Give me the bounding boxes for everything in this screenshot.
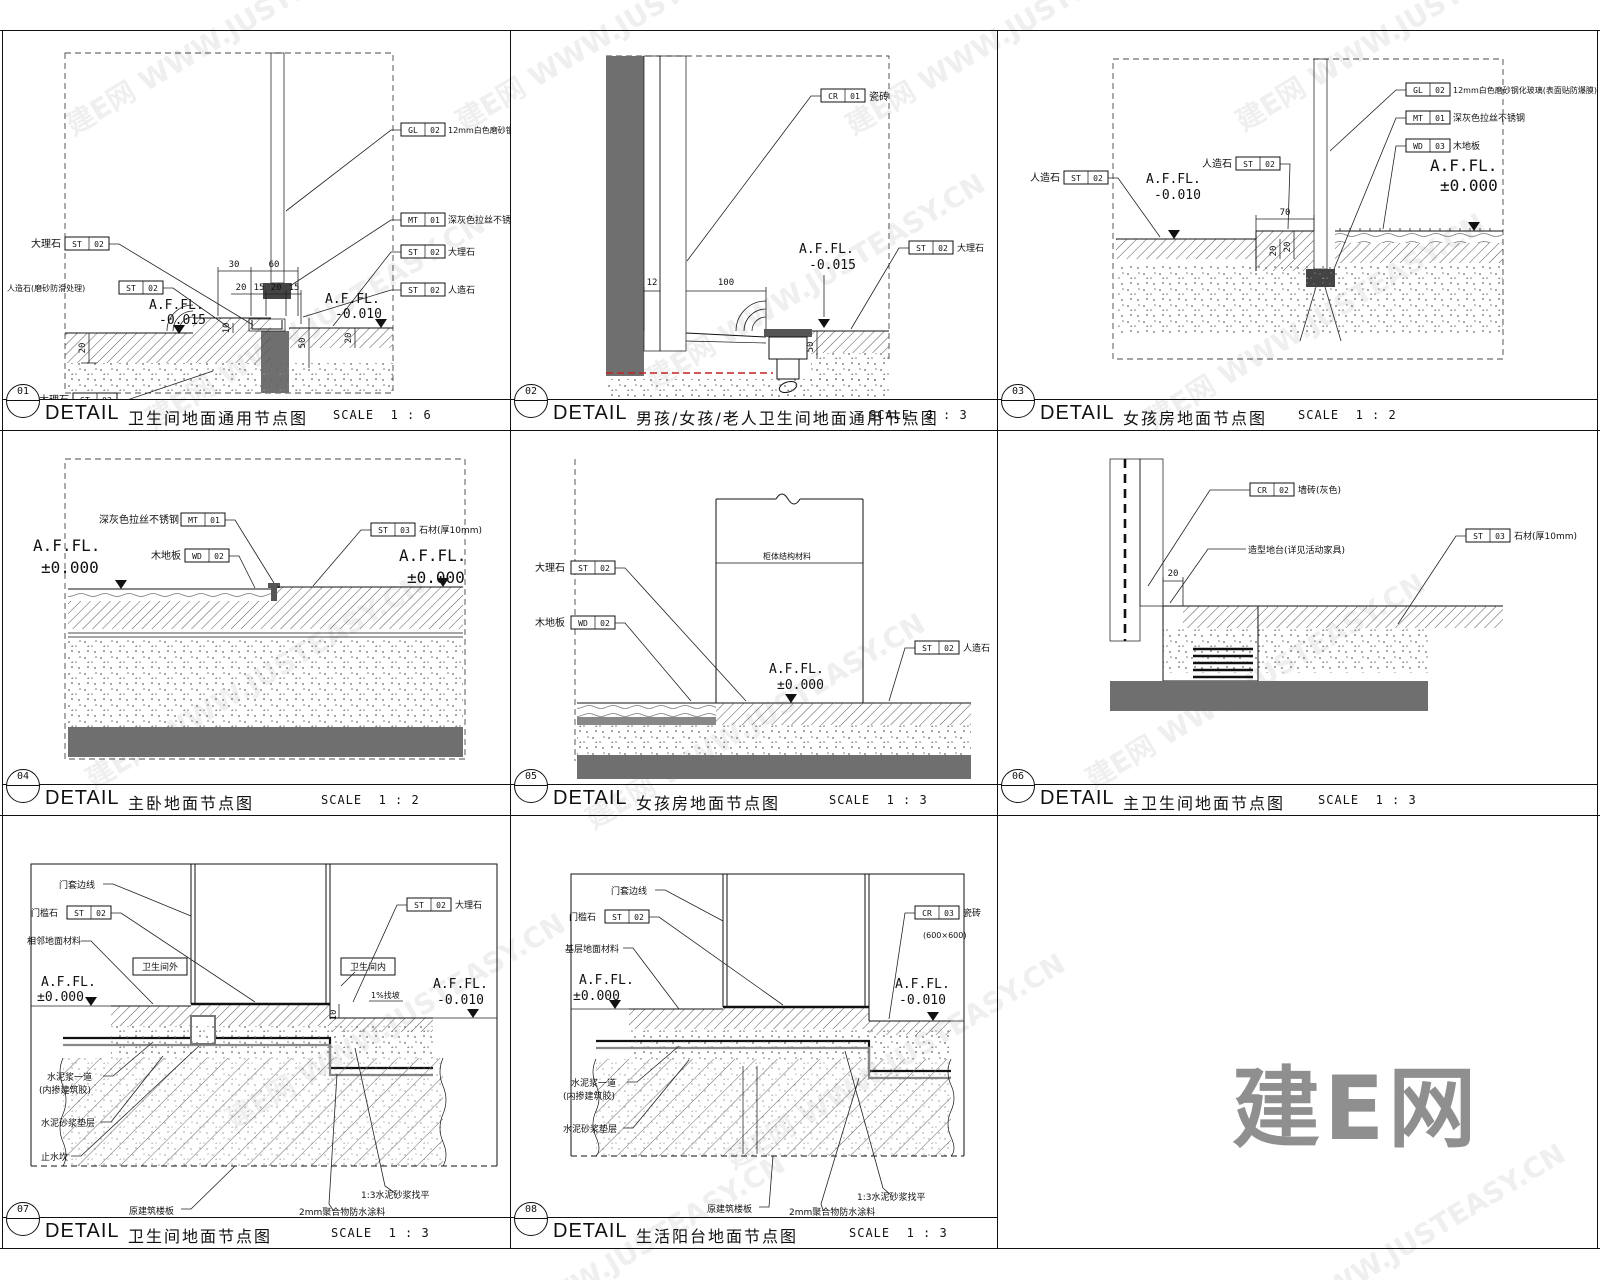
svg-text:03: 03 [400, 526, 410, 535]
svg-text:01: 01 [850, 92, 860, 101]
svg-text:卫生间外: 卫生间外 [142, 961, 178, 973]
svg-text:100: 100 [718, 278, 734, 288]
detail-title: 卫生间地面节点图 [128, 1223, 272, 1247]
svg-text:木地板: 木地板 [1453, 140, 1480, 152]
svg-text:深灰色拉丝不锈钢: 深灰色拉丝不锈钢 [448, 214, 510, 226]
detail-panel-05: 柜体结构材料 大理石 ST02 木地板 WD02 ST02 人造石 A.F.FL… [511, 431, 997, 815]
svg-text:瓷砖: 瓷砖 [869, 90, 889, 103]
svg-text:1%找坡: 1%找坡 [371, 990, 400, 1000]
svg-text:水泥砂浆垫层: 水泥砂浆垫层 [563, 1123, 617, 1135]
level-right: A.F.FL. -0.010 [433, 977, 497, 1018]
svg-text:深灰色拉丝不锈钢: 深灰色拉丝不锈钢 [99, 513, 179, 526]
svg-text:ST: ST [578, 564, 588, 573]
svg-text:-0.010: -0.010 [1154, 188, 1201, 203]
detail-word: DETAIL [45, 787, 120, 810]
substrate [1116, 263, 1503, 333]
detail-word: DETAIL [1040, 402, 1115, 425]
svg-text:ST: ST [922, 644, 932, 653]
slope-note: 1%找坡 [341, 972, 403, 1001]
dimensions: 20 [1163, 569, 1183, 606]
svg-text:A.F.FL.: A.F.FL. [399, 546, 466, 565]
svg-text:02: 02 [634, 913, 644, 922]
substrate [606, 379, 889, 400]
svg-text:ST: ST [414, 901, 424, 910]
svg-text:1:3水泥砂浆找平: 1:3水泥砂浆找平 [361, 1189, 430, 1201]
svg-text:ST: ST [612, 913, 622, 922]
svg-text:止水坎: 止水坎 [41, 1151, 68, 1163]
svg-text:±0.000: ±0.000 [1440, 176, 1498, 195]
svg-text:±0.000: ±0.000 [41, 558, 99, 577]
svg-text:20: 20 [344, 333, 354, 344]
svg-text:02: 02 [1279, 486, 1289, 495]
svg-text:人造石: 人造石 [1030, 171, 1060, 184]
zone-label-outside: 卫生间外 [133, 958, 187, 975]
floor-right-wood [1335, 228, 1503, 263]
svg-text:15: 15 [289, 283, 300, 293]
detail-panel-01: 30 60 20 15 20 15 20 10 50 20 GL02 12mm白… [3, 31, 510, 430]
svg-text:1:3水泥砂浆找平: 1:3水泥砂浆找平 [857, 1191, 926, 1203]
substrate [811, 353, 889, 381]
detail-title: 卫生间地面通用节点图 [128, 405, 308, 429]
tag-cr01: CR01 瓷砖 [687, 89, 889, 261]
svg-text:门槛石: 门槛石 [569, 911, 596, 923]
svg-text:20: 20 [271, 283, 282, 293]
svg-text:瓷砖: 瓷砖 [963, 907, 981, 919]
detail-scale: SCALE 1 : 3 [331, 1226, 430, 1240]
grid-line [0, 1248, 1600, 1249]
svg-text:A.F.FL.: A.F.FL. [33, 536, 100, 555]
svg-text:02: 02 [1435, 86, 1445, 95]
level-right: A.F.FL. -0.010 [895, 977, 964, 1021]
door-frame [191, 864, 330, 1018]
svg-text:相邻地面材料: 相邻地面材料 [27, 935, 81, 947]
svg-text:02: 02 [430, 286, 440, 295]
floor-build-up [1110, 606, 1503, 711]
level-left: A.F.FL. ±0.000 [571, 973, 634, 1009]
svg-text:大理石: 大理石 [957, 242, 984, 254]
detail-title: 女孩房地面节点图 [1123, 405, 1267, 429]
detail-scale: SCALE 1 : 2 [321, 793, 420, 807]
svg-text:02: 02 [938, 244, 948, 253]
svg-text:-0.010: -0.010 [899, 993, 946, 1008]
tag-st02: ST02 大理石 [851, 241, 984, 329]
svg-text:深灰色拉丝不锈钢: 深灰色拉丝不锈钢 [1453, 112, 1525, 124]
svg-text:02: 02 [944, 644, 954, 653]
svg-text:CR: CR [1257, 486, 1267, 495]
svg-text:50: 50 [806, 342, 816, 353]
svg-text:ST: ST [74, 909, 84, 918]
svg-text:02: 02 [436, 901, 446, 910]
tag-gl02: GL02 12mm白色磨砂钢化玻璃(表面贴防爆膜) [286, 123, 510, 211]
tag-st02-top: 人造石 ST02 [1202, 157, 1290, 229]
svg-text:卫生间内: 卫生间内 [350, 961, 386, 973]
svg-text:02: 02 [214, 552, 224, 561]
door-frame [723, 874, 869, 1021]
svg-text:A.F.FL.: A.F.FL. [1430, 156, 1497, 175]
detail-scale: SCALE 1 : 3 [1318, 793, 1417, 807]
level-right: A.F.FL. ±0.000 [1430, 156, 1498, 231]
svg-text:人造石: 人造石 [963, 642, 990, 654]
svg-text:水泥浆一道: 水泥浆一道 [47, 1071, 92, 1083]
svg-text:A.F.FL.: A.F.FL. [325, 292, 380, 307]
substrate [629, 1029, 951, 1059]
svg-text:石材(厚10mm): 石材(厚10mm) [419, 524, 482, 536]
svg-text:人造石: 人造石 [448, 284, 475, 296]
svg-text:60: 60 [269, 260, 280, 270]
svg-text:MT: MT [408, 216, 418, 225]
tag-wd02: 木地板 WD02 [151, 549, 255, 588]
titlebar-04: 04 DETAIL 主卧地面节点图 SCALE 1 : 2 [3, 784, 510, 815]
svg-text:ST: ST [72, 240, 82, 249]
svg-text:基层地面材料: 基层地面材料 [565, 943, 619, 955]
svg-text:造型地台(详见活动家具): 造型地台(详见活动家具) [1248, 544, 1345, 556]
svg-text:人造石: 人造石 [1202, 157, 1232, 170]
svg-text:CR: CR [922, 909, 932, 918]
svg-text:水泥砂浆垫层: 水泥砂浆垫层 [41, 1117, 95, 1129]
detail-scale: SCALE 1 : 3 [829, 793, 928, 807]
detail-word: DETAIL [45, 1220, 120, 1243]
svg-text:WD: WD [192, 552, 202, 561]
titlebar-02: 02 DETAIL 男孩/女孩/老人卫生间地面通用节点图 SCALE 1 : 3 [511, 399, 997, 430]
detail-number-badge: 05 [514, 769, 548, 803]
detail-word: DETAIL [553, 787, 628, 810]
svg-text:MT: MT [1413, 114, 1423, 123]
detail-title: 生活阳台地面节点图 [636, 1223, 798, 1247]
detail-title: 主卫生间地面节点图 [1123, 790, 1285, 814]
svg-text:门槛石: 门槛石 [31, 907, 58, 919]
floor-build-up [68, 583, 463, 757]
svg-text:MT: MT [188, 516, 198, 525]
svg-text:水泥浆一道: 水泥浆一道 [571, 1077, 616, 1089]
svg-text:20: 20 [1269, 246, 1279, 257]
svg-text:02: 02 [600, 619, 610, 628]
svg-text:ST: ST [126, 284, 136, 293]
detail-panel-04: 深灰色拉丝不锈钢 MT01 木地板 WD02 ST03 石材(厚10mm) A.… [3, 431, 510, 815]
detail-number-badge: 03 [1001, 384, 1035, 418]
detail-word: DETAIL [1040, 787, 1115, 810]
level-right: A.F.FL. ±0.000 [399, 546, 466, 587]
titlebar-05: 05 DETAIL 女孩房地面节点图 SCALE 1 : 3 [511, 784, 997, 815]
svg-text:CR: CR [828, 92, 838, 101]
svg-text:50: 50 [298, 338, 308, 349]
titlebar-08: 08 DETAIL 生活阳台地面节点图 SCALE 1 : 3 [511, 1217, 997, 1248]
svg-text:A.F.FL.: A.F.FL. [769, 662, 824, 677]
detail-panel-02: 12 100 50 CR01 瓷砖 ST02 大理石 A.F.FL. -0.01… [511, 31, 997, 430]
svg-text:±0.000: ±0.000 [37, 990, 84, 1005]
svg-text:ST: ST [1243, 160, 1253, 169]
detail-number-badge: 07 [6, 1202, 40, 1236]
svg-text:03: 03 [1435, 142, 1445, 151]
svg-text:15: 15 [254, 283, 265, 293]
svg-text:02: 02 [430, 248, 440, 257]
svg-text:(600×600): (600×600) [923, 931, 966, 940]
structural-slab [571, 1059, 964, 1156]
svg-text:20: 20 [236, 283, 247, 293]
svg-text:大理石: 大理石 [455, 899, 482, 911]
detail-panel-08: 门套边线 门槛石 ST02 基层地面材料 CR03 瓷砖 (600×600) A… [511, 816, 997, 1248]
dimensions [644, 287, 817, 359]
titlebar-03: 03 DETAIL 女孩房地面节点图 SCALE 1 : 2 [998, 399, 1597, 430]
detail-panel-07: 门套边线 门槛石 ST02 相邻地面材料 卫生间外 卫生间内 A.F.FL. ±… [3, 816, 510, 1248]
svg-text:01: 01 [210, 516, 220, 525]
svg-text:A.F.FL.: A.F.FL. [1146, 172, 1201, 187]
tag-st02-left: 大理石 ST02 [535, 561, 746, 701]
svg-text:ST: ST [378, 526, 388, 535]
svg-text:±0.000: ±0.000 [777, 678, 824, 693]
svg-text:原建筑楼板: 原建筑楼板 [707, 1203, 752, 1215]
svg-text:ST: ST [1071, 174, 1081, 183]
detail-panel-06: CR02 墙砖(灰色) 造型地台(详见活动家具) ST03 石材(厚10mm) … [998, 431, 1597, 815]
svg-text:A.F.FL.: A.F.FL. [579, 973, 634, 988]
svg-text:原建筑楼板: 原建筑楼板 [129, 1205, 174, 1217]
detail-title: 主卧地面节点图 [128, 790, 254, 814]
svg-text:门套边线: 门套边线 [611, 885, 647, 897]
svg-text:01: 01 [430, 216, 440, 225]
detail-scale: SCALE 1 : 6 [333, 408, 432, 422]
svg-text:A.F.FL.: A.F.FL. [149, 298, 204, 313]
detail-number-badge: 02 [514, 384, 548, 418]
svg-text:ST: ST [408, 286, 418, 295]
svg-text:-0.010: -0.010 [335, 307, 382, 322]
svg-text:人造石(磨砂防滑处理): 人造石(磨砂防滑处理) [7, 283, 85, 293]
detail-scale: SCALE 1 : 2 [1298, 408, 1397, 422]
note-platform: 造型地台(详见活动家具) [1170, 544, 1345, 603]
substrate [111, 1026, 433, 1058]
note-structural-slab: 原建筑楼板 [707, 1156, 773, 1215]
detail-title: 女孩房地面节点图 [636, 790, 780, 814]
tag-mt01: MT01 深灰色拉丝不锈钢 [290, 213, 510, 286]
svg-text:10: 10 [222, 323, 232, 334]
detail-word: DETAIL [553, 402, 628, 425]
svg-text:-0.010: -0.010 [437, 993, 484, 1008]
tag-wd02: 木地板 WD02 [535, 616, 691, 701]
svg-text:(内掺建筑胶): (内掺建筑胶) [563, 1090, 615, 1102]
svg-text:A.F.FL.: A.F.FL. [799, 242, 854, 257]
svg-text:木地板: 木地板 [151, 549, 181, 562]
svg-text:02: 02 [1265, 160, 1275, 169]
svg-text:30: 30 [229, 260, 240, 270]
level-left: A.F.FL. ±0.000 [33, 536, 127, 589]
cabinet-note: 柜体结构材料 [763, 551, 811, 561]
structural-slab [31, 1058, 497, 1166]
wall-section [606, 56, 686, 376]
svg-text:03: 03 [944, 909, 954, 918]
floor-build-up [577, 703, 971, 779]
svg-text:02: 02 [1093, 174, 1103, 183]
svg-text:02: 02 [600, 564, 610, 573]
svg-text:墙砖(灰色): 墙砖(灰色) [1298, 484, 1341, 496]
svg-text:-0.015: -0.015 [809, 258, 856, 273]
titlebar-01: 01 DETAIL 卫生间地面通用节点图 SCALE 1 : 6 [3, 399, 510, 430]
svg-text:12mm白色磨砂钢化玻璃(表面贴防爆膜): 12mm白色磨砂钢化玻璃(表面贴防爆膜) [448, 125, 510, 135]
svg-text:02: 02 [148, 284, 158, 293]
level-left: A.F.FL. ±0.000 [31, 975, 111, 1006]
titlebar-07: 07 DETAIL 卫生间地面节点图 SCALE 1 : 3 [3, 1217, 510, 1248]
svg-text:ST: ST [408, 248, 418, 257]
tag-st02-right: ST02 人造石 [889, 641, 990, 701]
svg-text:12mm白色磨砂钢化玻璃(表面贴防爆膜): 12mm白色磨砂钢化玻璃(表面贴防爆膜) [1453, 85, 1597, 95]
svg-text:20: 20 [1168, 569, 1179, 579]
detail-word: DETAIL [45, 402, 120, 425]
svg-text:03: 03 [1495, 532, 1505, 541]
tag-mt01: 深灰色拉丝不锈钢 MT01 [99, 513, 274, 583]
detail-scale: SCALE 1 : 3 [849, 1226, 948, 1240]
svg-text:20: 20 [1283, 242, 1293, 253]
svg-text:(内掺建筑胶): (内掺建筑胶) [39, 1084, 91, 1096]
note-structural-slab: 原建筑楼板 [129, 1166, 235, 1217]
svg-text:石材(厚10mm): 石材(厚10mm) [1514, 530, 1577, 542]
svg-text:GL: GL [1413, 86, 1423, 95]
zone-label-inside: 卫生间内 [341, 958, 395, 975]
svg-text:ST: ST [916, 244, 926, 253]
detail-number-badge: 01 [6, 384, 40, 418]
svg-text:±0.000: ±0.000 [407, 568, 465, 587]
svg-text:A.F.FL.: A.F.FL. [895, 977, 950, 992]
svg-text:大理石: 大理石 [448, 246, 475, 258]
big-watermark-logo: 建E网 [1232, 1038, 1480, 1165]
svg-text:02: 02 [430, 126, 440, 135]
detail-word: DETAIL [553, 1220, 628, 1243]
detail-number-badge: 08 [514, 1202, 548, 1236]
svg-text:门套边线: 门套边线 [59, 879, 95, 891]
svg-text:WD: WD [578, 619, 588, 628]
level-right: A.F.FL. -0.010 [325, 292, 387, 328]
tag-st02-left: 人造石 ST02 [1030, 171, 1160, 237]
level-center: A.F.FL. -0.015 [799, 242, 856, 328]
svg-text:大理石: 大理石 [31, 237, 61, 250]
svg-text:02: 02 [96, 909, 106, 918]
wall-section [1110, 459, 1163, 641]
svg-text:A.F.FL.: A.F.FL. [433, 977, 488, 992]
svg-text:GL: GL [408, 126, 418, 135]
svg-text:木地板: 木地板 [535, 616, 565, 629]
svg-text:大理石: 大理石 [535, 561, 565, 574]
svg-text:01: 01 [1435, 114, 1445, 123]
detail-scale: SCALE 1 : 3 [869, 408, 968, 422]
detail-panel-03: 70 20 20 GL02 12mm白色磨砂钢化玻璃(表面贴防爆膜) MT01 … [998, 31, 1597, 430]
svg-text:02: 02 [94, 240, 104, 249]
detail-number-badge: 06 [1001, 769, 1035, 803]
titlebar-06: 06 DETAIL 主卫生间地面节点图 SCALE 1 : 3 [998, 784, 1597, 815]
substrate [65, 363, 393, 393]
svg-text:20: 20 [78, 343, 88, 354]
detail-number-badge: 04 [6, 769, 40, 803]
drawing-sheet: 建E网 WWW.JUSTEASY.CN 建E网 WWW.JUSTEASY.CN … [0, 0, 1600, 1280]
svg-text:WD: WD [1413, 142, 1423, 151]
svg-text:A.F.FL.: A.F.FL. [41, 975, 96, 990]
svg-text:ST: ST [1473, 532, 1483, 541]
svg-text:10: 10 [329, 1010, 339, 1021]
level-center: A.F.FL. ±0.000 [769, 662, 824, 703]
grid-line [1597, 30, 1598, 1248]
svg-text:12: 12 [647, 278, 658, 288]
